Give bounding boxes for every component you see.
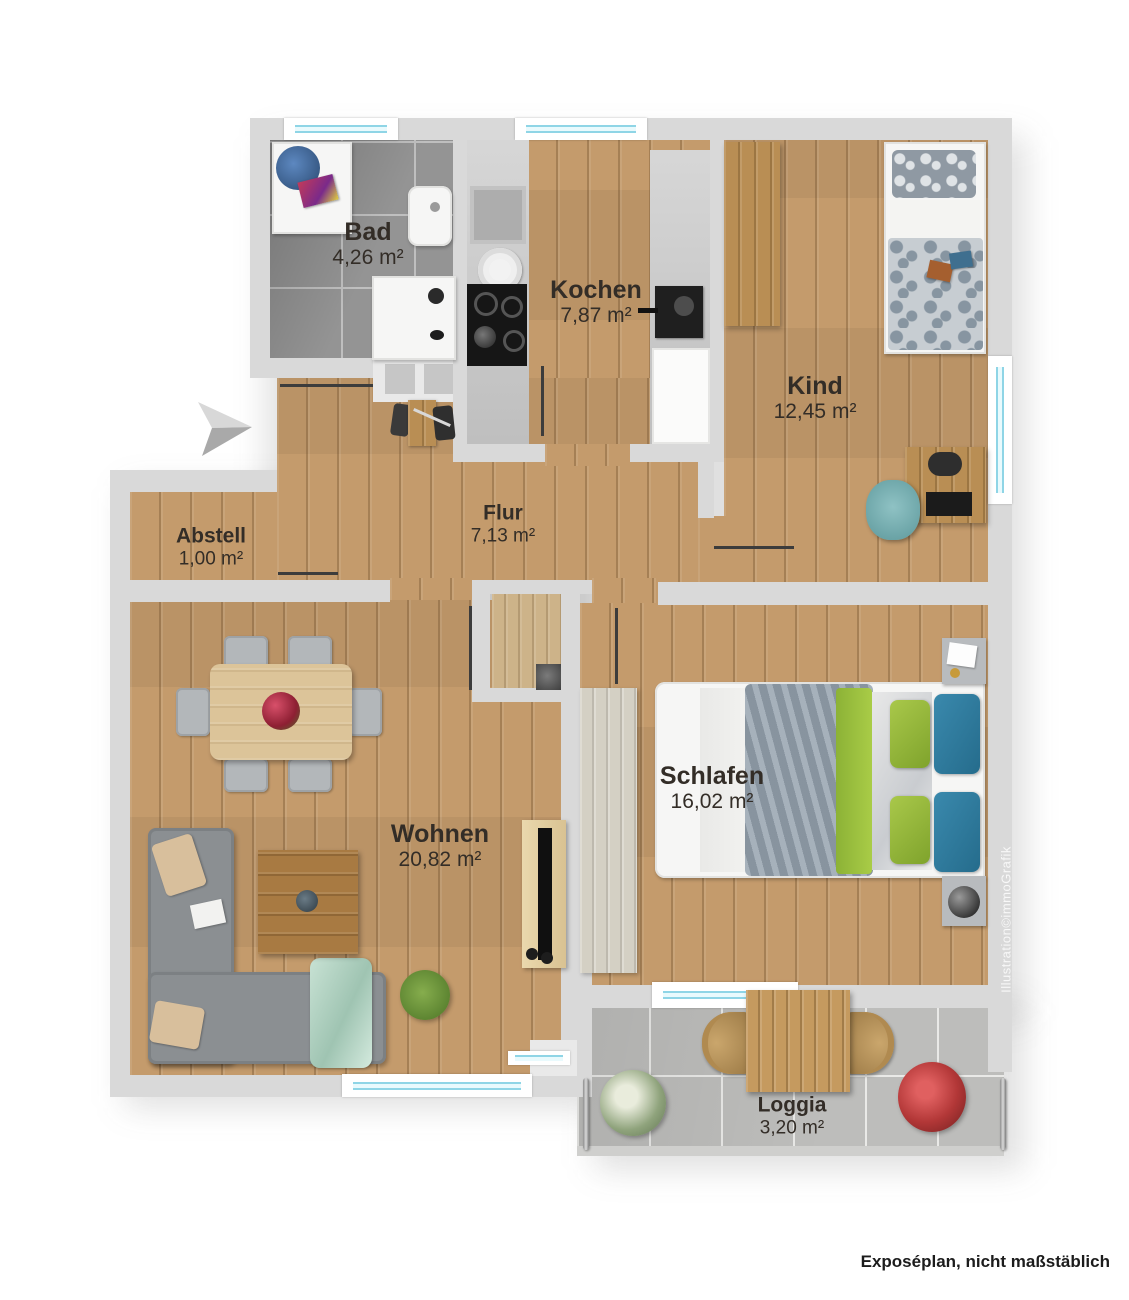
wall-left-upper [250, 118, 270, 378]
room-label-kochen: Kochen 7,87 m² [550, 276, 642, 328]
kind-pillow [892, 150, 976, 198]
sofa-pillow [149, 1000, 206, 1050]
window-kind [988, 356, 1012, 504]
room-area: 16,02 m² [660, 790, 764, 814]
pan-on-burner [474, 326, 496, 348]
sphere-lamp [948, 886, 980, 918]
red-flower-plant [898, 1062, 966, 1132]
window-wohnen-small [508, 1051, 570, 1065]
schlafen-door-leaf [615, 608, 618, 684]
shower [372, 276, 456, 360]
speaker [541, 952, 553, 964]
window-glass [996, 367, 1004, 493]
coffee-table-vase [296, 890, 318, 912]
keyboard [926, 492, 972, 516]
wall-abstell-top [110, 470, 277, 492]
room-area: 7,13 m² [471, 525, 535, 546]
kind-wardrobe [724, 142, 780, 326]
mint-throw [310, 958, 372, 1068]
kochen-doorway-floor [545, 444, 630, 466]
room-area: 4,26 m² [332, 246, 403, 270]
window-bad [284, 118, 398, 140]
kochen-door-leaf [541, 366, 544, 436]
sink-drain [430, 202, 440, 212]
shower-drain [430, 330, 444, 340]
dining-chair [288, 758, 332, 792]
loggia-bottom-edge [577, 1146, 1004, 1156]
bed-pillow-green-bottom [890, 796, 930, 864]
wall-kochen-kind [710, 140, 724, 462]
wall-kochen-stub-left [453, 444, 545, 462]
dining-chair [348, 688, 382, 736]
room-area: 20,82 m² [391, 848, 489, 872]
white-flower-plant [600, 1070, 666, 1136]
kind-door-leaf [714, 546, 794, 549]
window-wohnen [342, 1074, 532, 1097]
kind-doorway-floor [698, 516, 726, 586]
room-name: Schlafen [660, 762, 764, 790]
floor-plan: Bad 4,26 m² Kochen 7,87 m² Kind 12,45 m²… [0, 0, 1129, 1300]
coffee-machine-dial [674, 296, 694, 316]
bed-pillow-green-top [890, 700, 930, 768]
wall-kind-schlafen [658, 582, 988, 605]
dining-chair [224, 758, 268, 792]
room-area: 12,45 m² [774, 400, 857, 424]
coat-bench [408, 400, 436, 446]
window-glass [515, 1055, 563, 1061]
headphones [928, 452, 962, 476]
room-label-kind: Kind 12,45 m² [774, 372, 857, 424]
wall-niche-bottom [490, 688, 563, 702]
speaker [526, 948, 538, 960]
tv [538, 828, 552, 960]
room-name: Bad [332, 218, 403, 246]
loggia-table [746, 990, 850, 1092]
room-name: Loggia [758, 1094, 827, 1118]
room-label-schlafen: Schlafen 16,02 m² [660, 762, 764, 814]
dining-chair [176, 688, 210, 736]
burner [501, 296, 523, 318]
room-area: 7,87 m² [550, 304, 642, 328]
table-flowers [262, 692, 300, 730]
bad-frosted-panel-right [424, 364, 454, 394]
room-name: Wohnen [391, 820, 489, 848]
railing-post-right [1000, 1078, 1006, 1150]
burner [503, 330, 525, 352]
room-label-bad: Bad 4,26 m² [332, 218, 403, 270]
window-kochen [515, 118, 647, 140]
wall-left-lower [110, 470, 130, 1097]
bed-runner-green [836, 688, 872, 874]
floor-plant [400, 970, 450, 1020]
watermark-credit: Illustration©immoGrafik [999, 814, 1014, 1026]
wohnen-door-leaf [469, 606, 472, 690]
bed-pillow-blue-top [934, 694, 980, 774]
room-name: Kochen [550, 276, 642, 304]
window-glass [353, 1082, 521, 1090]
plan-caption: Exposéplan, nicht maßstäblich [810, 1252, 1110, 1272]
window-glass [526, 125, 636, 133]
wall-niche-top [472, 580, 592, 594]
room-label-wohnen: Wohnen 20,82 m² [391, 820, 489, 872]
desk-chair [866, 480, 920, 540]
railing-post-left [583, 1078, 589, 1150]
entrance-door-leaf [280, 384, 373, 387]
wall-niche-left [472, 594, 490, 702]
room-area: 1,00 m² [176, 548, 246, 569]
fridge [652, 348, 710, 444]
bed-pillow-blue-bottom [934, 792, 980, 872]
schlafen-wardrobe [580, 688, 637, 973]
shaft-box [536, 664, 561, 690]
room-area: 3,20 m² [758, 1117, 827, 1138]
room-name: Kind [774, 372, 857, 400]
room-name: Abstell [176, 525, 246, 549]
room-name: Flur [471, 502, 535, 526]
book-on-bed [949, 251, 973, 270]
wall-flur-kind [698, 462, 714, 518]
bad-sink [408, 186, 452, 246]
room-label-flur: Flur 7,13 m² [471, 502, 535, 547]
bad-frosted-panel-left [385, 364, 415, 394]
entrance-arrow-icon [196, 400, 254, 458]
wall-kochen-stub-right [630, 444, 724, 462]
room-label-abstell: Abstell 1,00 m² [176, 525, 246, 570]
room-label-loggia: Loggia 3,20 m² [758, 1094, 827, 1139]
shower-head [428, 288, 444, 304]
wall-abstell-bottom [110, 580, 390, 602]
abstell-door-leaf [278, 572, 338, 575]
burner [474, 292, 498, 316]
kitchen-sink [470, 186, 526, 244]
notepad [947, 642, 978, 668]
window-glass [295, 125, 387, 133]
clock [950, 668, 960, 678]
